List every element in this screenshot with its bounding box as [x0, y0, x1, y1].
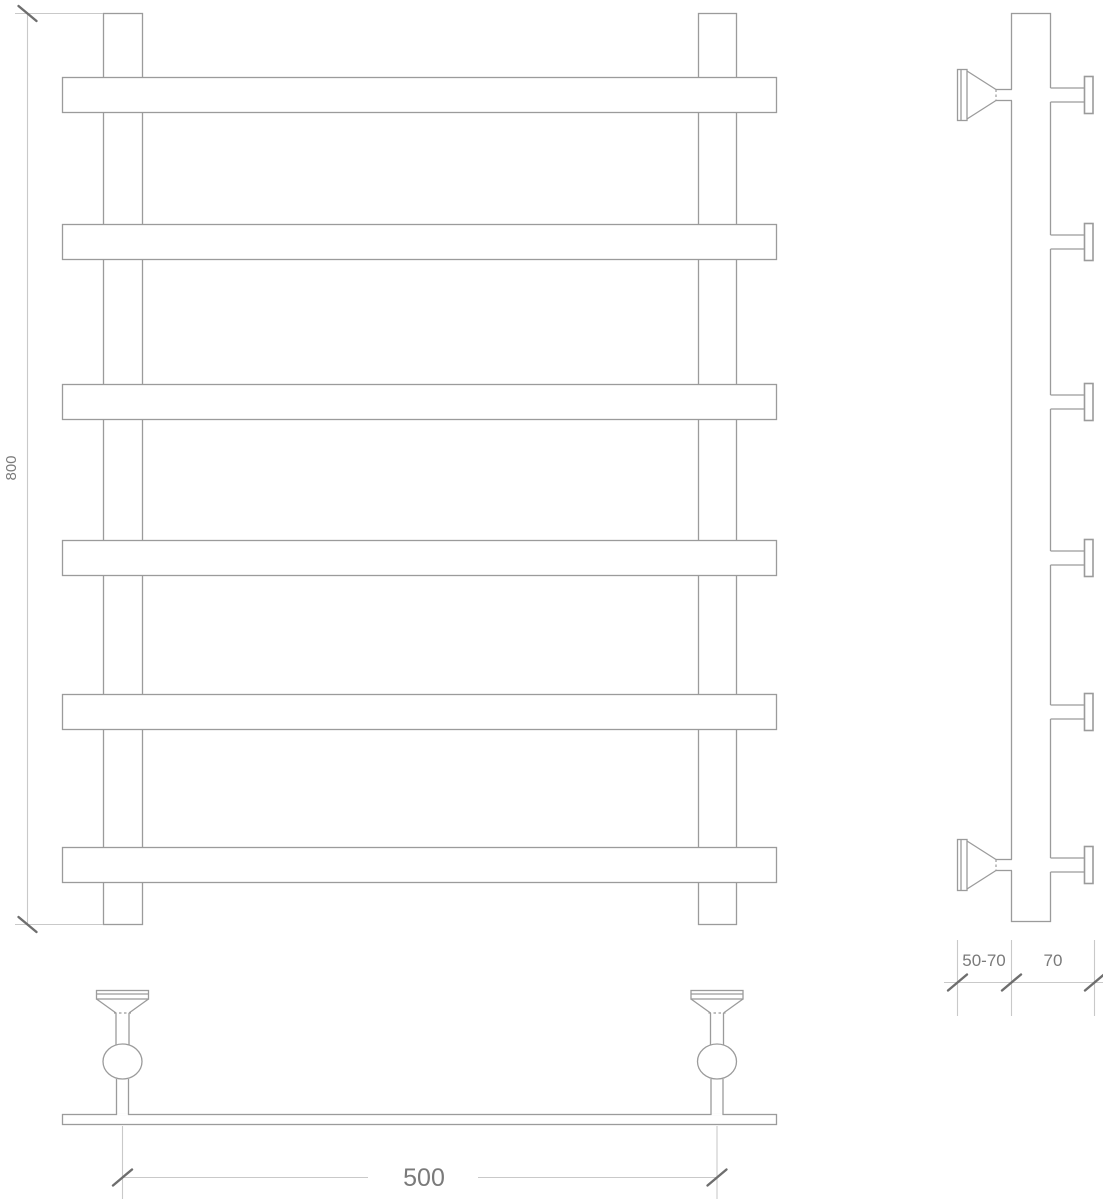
plan-bracket-right-ball [698, 1044, 737, 1079]
side-rung-6 [1049, 847, 1093, 884]
plan-wall-plate-right [691, 991, 743, 1000]
plan-bracket-left-ball [103, 1044, 142, 1079]
depth-dimension: 50-70 70 [944, 940, 1103, 1016]
front-bar-1 [63, 78, 777, 113]
side-rung-5 [1049, 694, 1093, 731]
wall-bracket-top [958, 70, 1014, 121]
side-rung-cap-3 [1085, 384, 1094, 421]
height-dimension-label: 800 [3, 455, 20, 480]
plan-wall-plate-left [97, 991, 149, 1000]
front-bar-6 [63, 848, 777, 883]
side-rung-2 [1049, 224, 1093, 261]
width-dimension: 500 [113, 1126, 727, 1199]
wall-plate-bottom [958, 840, 968, 891]
plan-bracket-left [97, 991, 149, 1116]
wall-bracket-bottom [958, 840, 1014, 891]
side-view [958, 14, 1094, 922]
side-rung-cap-5 [1085, 694, 1094, 731]
side-rung-cap-6 [1085, 847, 1094, 884]
side-rung-3 [1049, 384, 1093, 421]
wall-plate-top [958, 70, 968, 121]
side-rung-cap-4 [1085, 540, 1094, 577]
side-rung-4 [1049, 540, 1093, 577]
front-bar-2 [63, 225, 777, 260]
front-view [63, 14, 777, 925]
height-dimension: 800 [3, 6, 103, 932]
depth-label: 70 [1044, 951, 1063, 970]
front-post-right [699, 14, 737, 925]
front-post-left [104, 14, 143, 925]
side-post [1012, 14, 1051, 922]
drawing-canvas: 800 [0, 0, 1103, 1200]
front-bar-4 [63, 541, 777, 576]
front-bar-3 [63, 385, 777, 420]
plan-bar [63, 1115, 777, 1125]
front-bar-5 [63, 695, 777, 730]
plan-bracket-right [691, 991, 743, 1116]
plan-view [63, 991, 777, 1125]
wall-offset-label: 50-70 [962, 951, 1005, 970]
side-rung-cap-2 [1085, 224, 1094, 261]
width-dimension-label: 500 [403, 1164, 445, 1192]
side-rung-cap-1 [1085, 77, 1094, 114]
side-rung-1 [1049, 77, 1093, 114]
